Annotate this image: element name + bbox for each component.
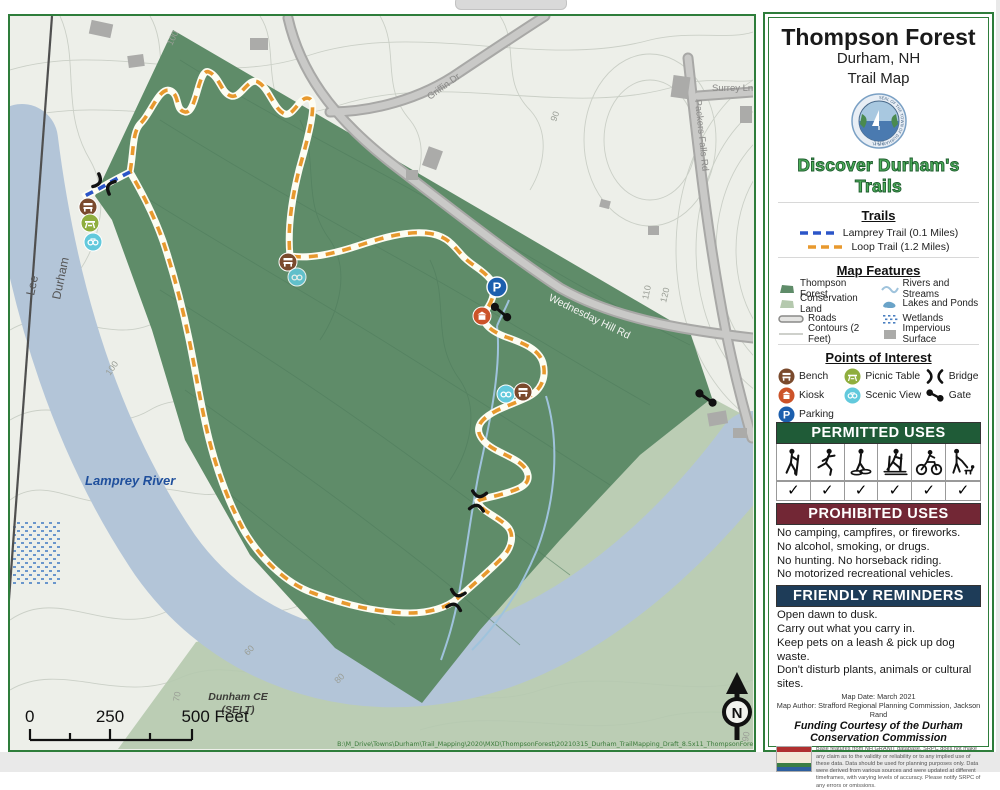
conservation-swatch [778, 298, 796, 310]
bench-icon [778, 368, 795, 385]
poi-parking: P Parking [778, 406, 844, 422]
forest-swatch [778, 283, 796, 295]
permitted-uses-icons [776, 444, 981, 481]
reminder-line: Open dawn to dusk. [777, 609, 980, 623]
map-title: Thompson Forest [776, 25, 981, 49]
divider [778, 344, 979, 345]
svg-text:N: N [732, 705, 743, 722]
prohibited-line: No alcohol, smoking, or drugs. [777, 541, 980, 555]
feature-label: Contours (2 Feet) [808, 323, 877, 345]
poi-label: Scenic View [865, 390, 921, 401]
impervious-swatch [881, 328, 899, 340]
prohibited-line: No motorized recreational vehicles. [777, 568, 980, 582]
snowshoeing-icon [845, 444, 879, 480]
poi-label: Gate [949, 390, 971, 401]
poi-legend: Bench Kiosk P Parking Picnic Table Sceni… [776, 368, 981, 422]
data-disclaimer: Base features from NH GRANIT database. S… [816, 746, 981, 790]
lake-swatch [881, 298, 899, 310]
gate-icon [925, 387, 945, 404]
map-subtitle-type: Trail Map [776, 69, 981, 89]
wetland-area [12, 522, 60, 584]
reminder-line: Don't disturb plants, animals or cultura… [777, 664, 980, 692]
poi-picnic-table: Picnic Table [844, 368, 924, 384]
poi-bench: Bench [778, 368, 844, 384]
parking-marker: P [487, 277, 507, 297]
conservation-label-1: Dunham CE [208, 691, 269, 703]
srpc-logo [776, 746, 812, 772]
reminder-line: Keep pets on a leash & pick up dog waste… [777, 637, 980, 665]
feature-impervious: Impervious Surface [881, 326, 980, 341]
legend-panel-inner: Thompson Forest Durham, NH Trail Map SEA… [768, 17, 989, 747]
poi-label: Bridge [949, 371, 979, 382]
durham-town-seal: SEAL OF THE TOWN OF DURHAM N.H. 1732 [850, 92, 908, 150]
svg-text:250: 250 [96, 707, 124, 726]
parking-icon: P [778, 406, 795, 423]
poi-scenic-view: Scenic View [844, 387, 924, 403]
kiosk-marker [473, 307, 491, 325]
legend-panel: Thompson Forest Durham, NH Trail Map SEA… [763, 12, 994, 752]
feature-label: Impervious Surface [903, 323, 980, 345]
map-date: Map Date: March 2021 [776, 692, 981, 701]
prohibited-uses-list: No camping, campfires, or fireworks. No … [776, 525, 981, 582]
trail-map[interactable]: P Lee Durham Lamprey River Griffin Dr Su… [8, 14, 756, 752]
svg-text:0: 0 [25, 707, 34, 726]
trail-legend-label: Loop Trail (1.2 Miles) [851, 241, 949, 253]
svg-text:70: 70 [171, 691, 183, 703]
prohibited-line: No hunting. No horseback riding. [777, 555, 980, 569]
bridge-icon [925, 368, 945, 385]
river-label: Lamprey River [85, 473, 176, 488]
reminder-line: Carry out what you carry in. [777, 623, 980, 637]
poi-bridge: Bridge [925, 368, 979, 384]
credits-block: Map Date: March 2021 Map Author: Straffo… [776, 692, 981, 790]
trail-legend-label: Lamprey Trail (0.1 Miles) [843, 227, 959, 239]
feature-rivers-streams: Rivers and Streams [881, 281, 980, 296]
poi-label: Kiosk [799, 390, 824, 401]
scenic-view-marker [84, 233, 102, 251]
friendly-reminders-list: Open dawn to dusk. Carry out what you ca… [776, 607, 981, 692]
svg-text:1732: 1732 [873, 141, 884, 146]
check-mark: ✓ [946, 481, 980, 500]
poi-label: Picnic Table [865, 371, 920, 382]
svg-text:P: P [783, 409, 790, 421]
map-author: Map Author: Strafford Regional Planning … [776, 701, 981, 719]
permitted-uses-header: PERMITTED USES [776, 422, 981, 444]
svg-text:500 Feet: 500 Feet [181, 707, 248, 726]
prohibited-uses-header: PROHIBITED USES [776, 503, 981, 525]
check-mark: ✓ [878, 481, 912, 500]
tagline: Discover Durham's Trails [776, 155, 981, 197]
scenic-view-marker [288, 268, 306, 286]
permitted-uses-checks: ✓ ✓ ✓ ✓ ✓ ✓ [776, 481, 981, 501]
feature-lakes-ponds: Lakes and Ponds [881, 296, 980, 311]
loop-trail-swatch [807, 243, 845, 251]
hiking-icon [777, 444, 811, 480]
divider [778, 257, 979, 258]
svg-text:P: P [493, 280, 502, 295]
poi-gate: Gate [925, 387, 979, 403]
map-attribution: B:\M_Drive\Towns\Durham\Trail_Mapping\20… [337, 741, 753, 748]
picnic-table-marker [81, 214, 99, 232]
friendly-reminders-header: FRIENDLY REMINDERS [776, 585, 981, 607]
right-edge-strip [996, 0, 1000, 772]
running-icon [811, 444, 845, 480]
biking-icon [912, 444, 946, 480]
map-features-heading: Map Features [776, 263, 981, 278]
trail-legend-loop: Loop Trail (1.2 Miles) [776, 241, 981, 253]
lamprey-trail-swatch [799, 229, 837, 237]
road-label-surrey: Surrey Ln [712, 83, 753, 94]
dog-walking-icon [946, 444, 980, 480]
poi-label: Bench [799, 371, 828, 382]
poi-heading: Points of Interest [776, 350, 981, 365]
divider [778, 202, 979, 203]
road-swatch [778, 313, 804, 325]
bench-marker [514, 383, 532, 401]
poi-kiosk: Kiosk [778, 387, 844, 403]
poi-label: Parking [799, 409, 834, 420]
scenic-view-icon [844, 387, 861, 404]
scenic-view-marker [497, 385, 515, 403]
feature-contours: Contours (2 Feet) [778, 326, 877, 341]
check-mark: ✓ [912, 481, 946, 500]
picnic-table-icon [844, 368, 861, 385]
check-mark: ✓ [777, 481, 811, 500]
bench-marker [79, 198, 97, 216]
river-swatch [881, 283, 899, 295]
check-mark: ✓ [845, 481, 879, 500]
map-subtitle-town: Durham, NH [776, 49, 981, 69]
feature-label: Lakes and Ponds [903, 298, 979, 309]
trail-legend-lamprey: Lamprey Trail (0.1 Miles) [776, 227, 981, 239]
map-features-legend: Thompson Forest Rivers and Streams Conse… [776, 281, 981, 341]
check-mark: ✓ [811, 481, 845, 500]
wetland-swatch [881, 313, 899, 325]
feature-conservation-land: Conservation Land [778, 296, 877, 311]
browser-chrome-fragment [455, 0, 567, 10]
funding-credit: Funding Courtesy of the Durham Conservat… [776, 720, 981, 744]
trails-heading: Trails [776, 208, 981, 223]
prohibited-line: No camping, campfires, or fireworks. [777, 527, 980, 541]
contour-swatch [778, 328, 804, 340]
cross-country-skiing-icon [878, 444, 912, 480]
kiosk-icon [778, 387, 795, 404]
